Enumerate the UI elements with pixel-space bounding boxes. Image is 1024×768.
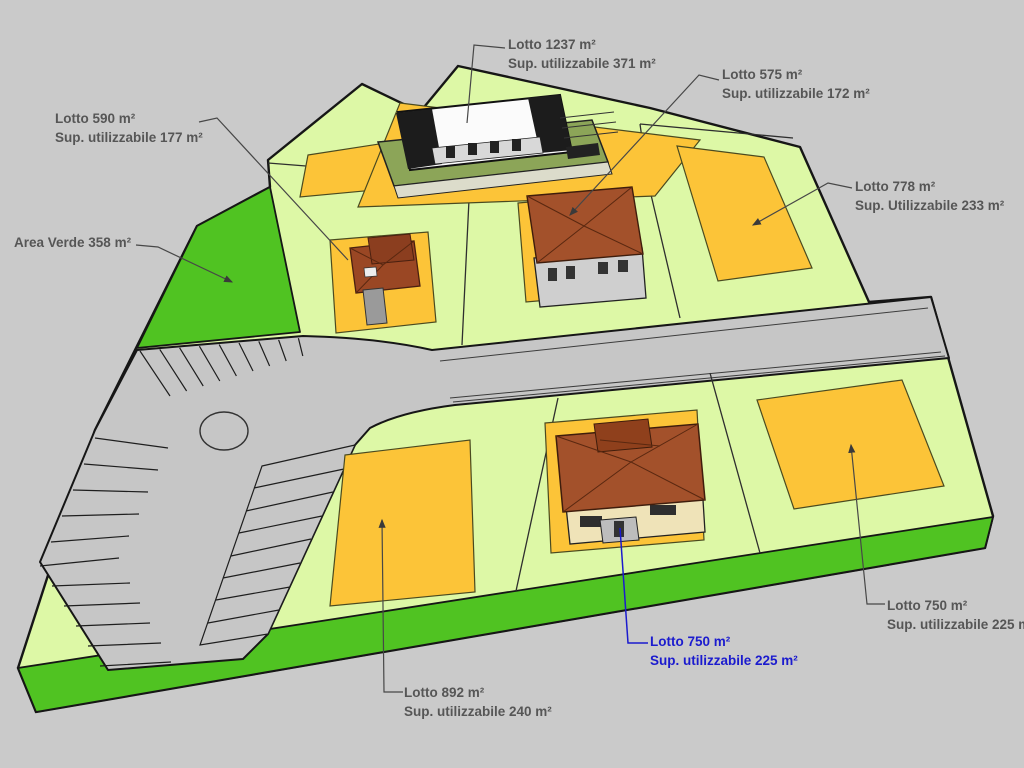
site-plan-canvas: Lotto 1237 m² Sup. utilizzabile 371 m² L… [0,0,1024,768]
label-lotto-1237: Lotto 1237 m² Sup. utilizzabile 371 m² [508,36,656,73]
label-lotto-590: Lotto 590 m² Sup. utilizzabile 177 m² [55,110,203,147]
label-line: Lotto 575 m² [722,66,870,85]
buildable-area-lotto-892 [330,440,475,606]
area-verde-region [137,187,300,348]
label-lotto-575: Lotto 575 m² Sup. utilizzabile 172 m² [722,66,870,103]
label-line: Sup. Utilizzabile 233 m² [855,197,1004,216]
label-line: Sup. utilizzabile 371 m² [508,55,656,74]
label-line: Area Verde 358 m² [14,234,131,253]
label-line: Sup. utilizzabile 172 m² [722,85,870,104]
label-lotto-750-blue: Lotto 750 m² Sup. utilizzabile 225 m² [650,633,798,670]
label-line: Lotto 1237 m² [508,36,656,55]
label-line: Lotto 778 m² [855,178,1004,197]
label-lotto-892: Lotto 892 m² Sup. utilizzabile 240 m² [404,684,552,721]
label-lotto-778: Lotto 778 m² Sup. Utilizzabile 233 m² [855,178,1004,215]
label-area-verde: Area Verde 358 m² [14,234,131,253]
label-line: Lotto 590 m² [55,110,203,129]
label-line: Lotto 750 m² [887,597,1024,616]
label-line: Lotto 750 m² [650,633,798,652]
house-lotto-750 [556,419,705,544]
label-line: Sup. utilizzabile 240 m² [404,703,552,722]
house-lotto-575 [527,187,646,307]
label-line: Sup. utilizzabile 177 m² [55,129,203,148]
label-line: Sup. utilizzabile 225 m² [650,652,798,671]
label-line: Lotto 892 m² [404,684,552,703]
label-lotto-750-right: Lotto 750 m² Sup. utilizzabile 225 m² [887,597,1024,634]
label-line: Sup. utilizzabile 225 m² [887,616,1024,635]
